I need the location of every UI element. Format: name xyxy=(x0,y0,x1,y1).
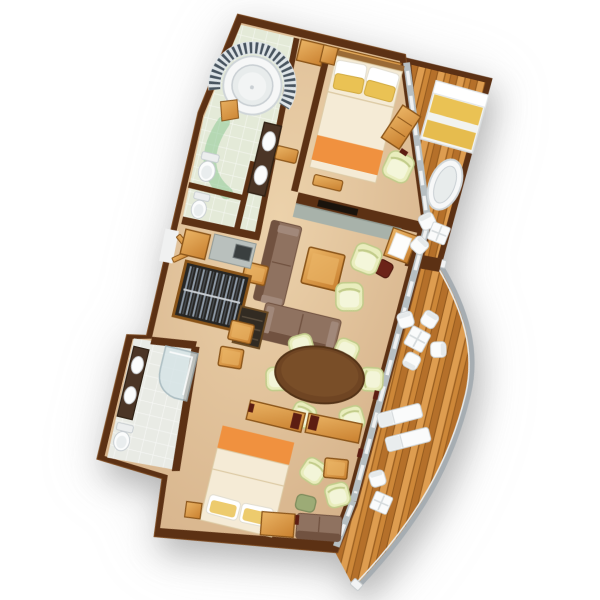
pantry-cabinet xyxy=(180,229,210,259)
guest-nightstand-left xyxy=(185,501,202,518)
guest-sofa xyxy=(292,513,342,542)
suite-plan-render xyxy=(66,0,556,600)
canvas-background xyxy=(0,0,600,600)
guest-desk xyxy=(260,512,295,538)
side-table-pair-2 xyxy=(218,346,244,369)
guest-game-table xyxy=(323,458,348,480)
floor-plan xyxy=(121,25,501,600)
living-armchair-2 xyxy=(336,283,363,311)
veranda-chair-3 xyxy=(430,342,446,358)
